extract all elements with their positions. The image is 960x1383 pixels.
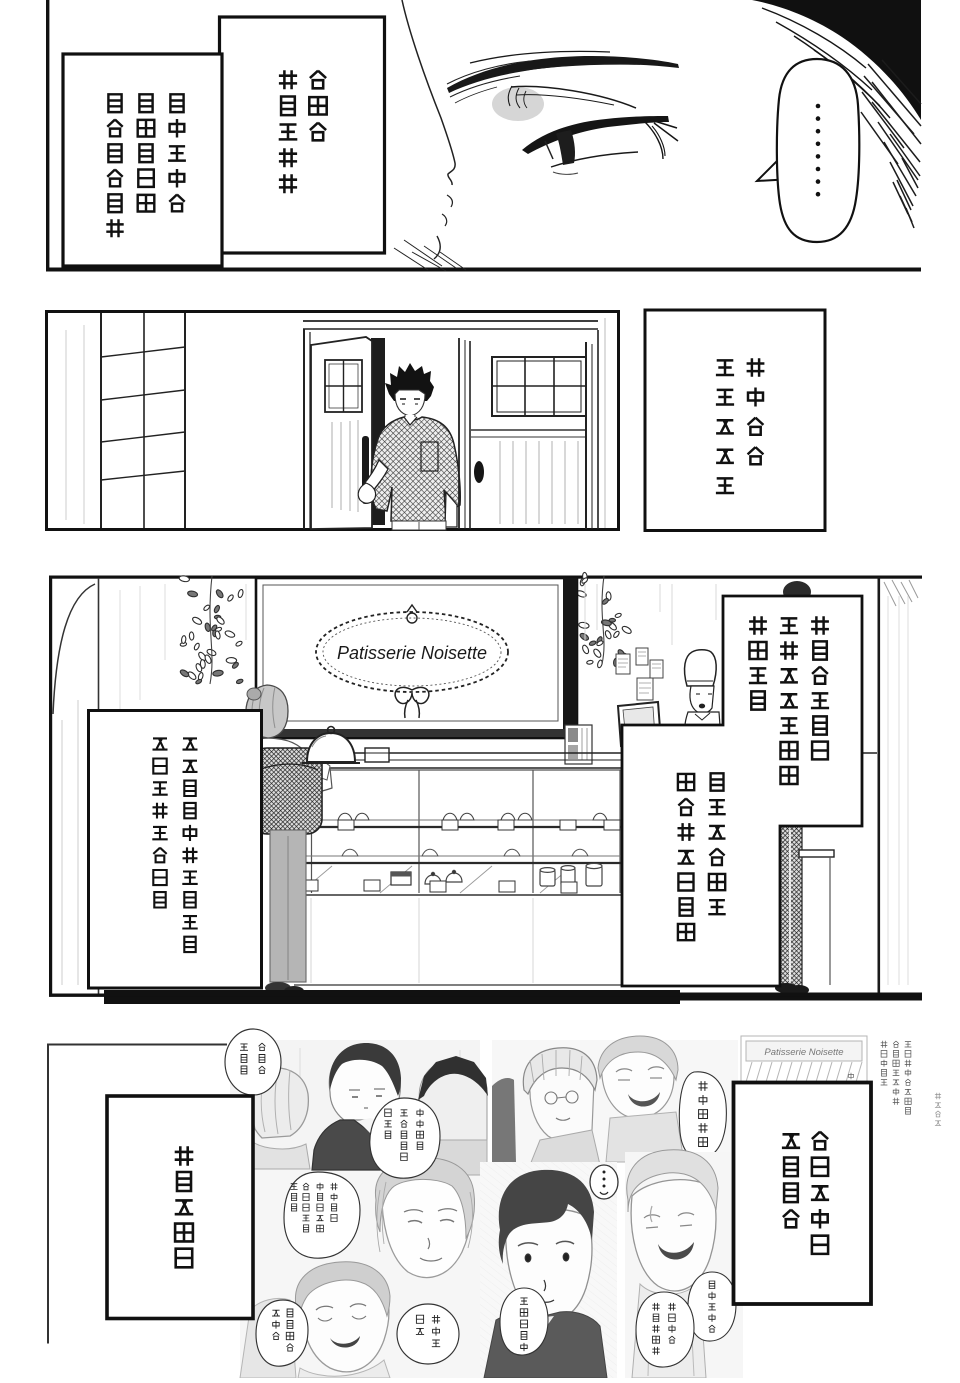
svg-text:Patisserie Noisette: Patisserie Noisette [764,1047,843,1058]
svg-text:Patisserie Noisette: Patisserie Noisette [337,643,487,663]
